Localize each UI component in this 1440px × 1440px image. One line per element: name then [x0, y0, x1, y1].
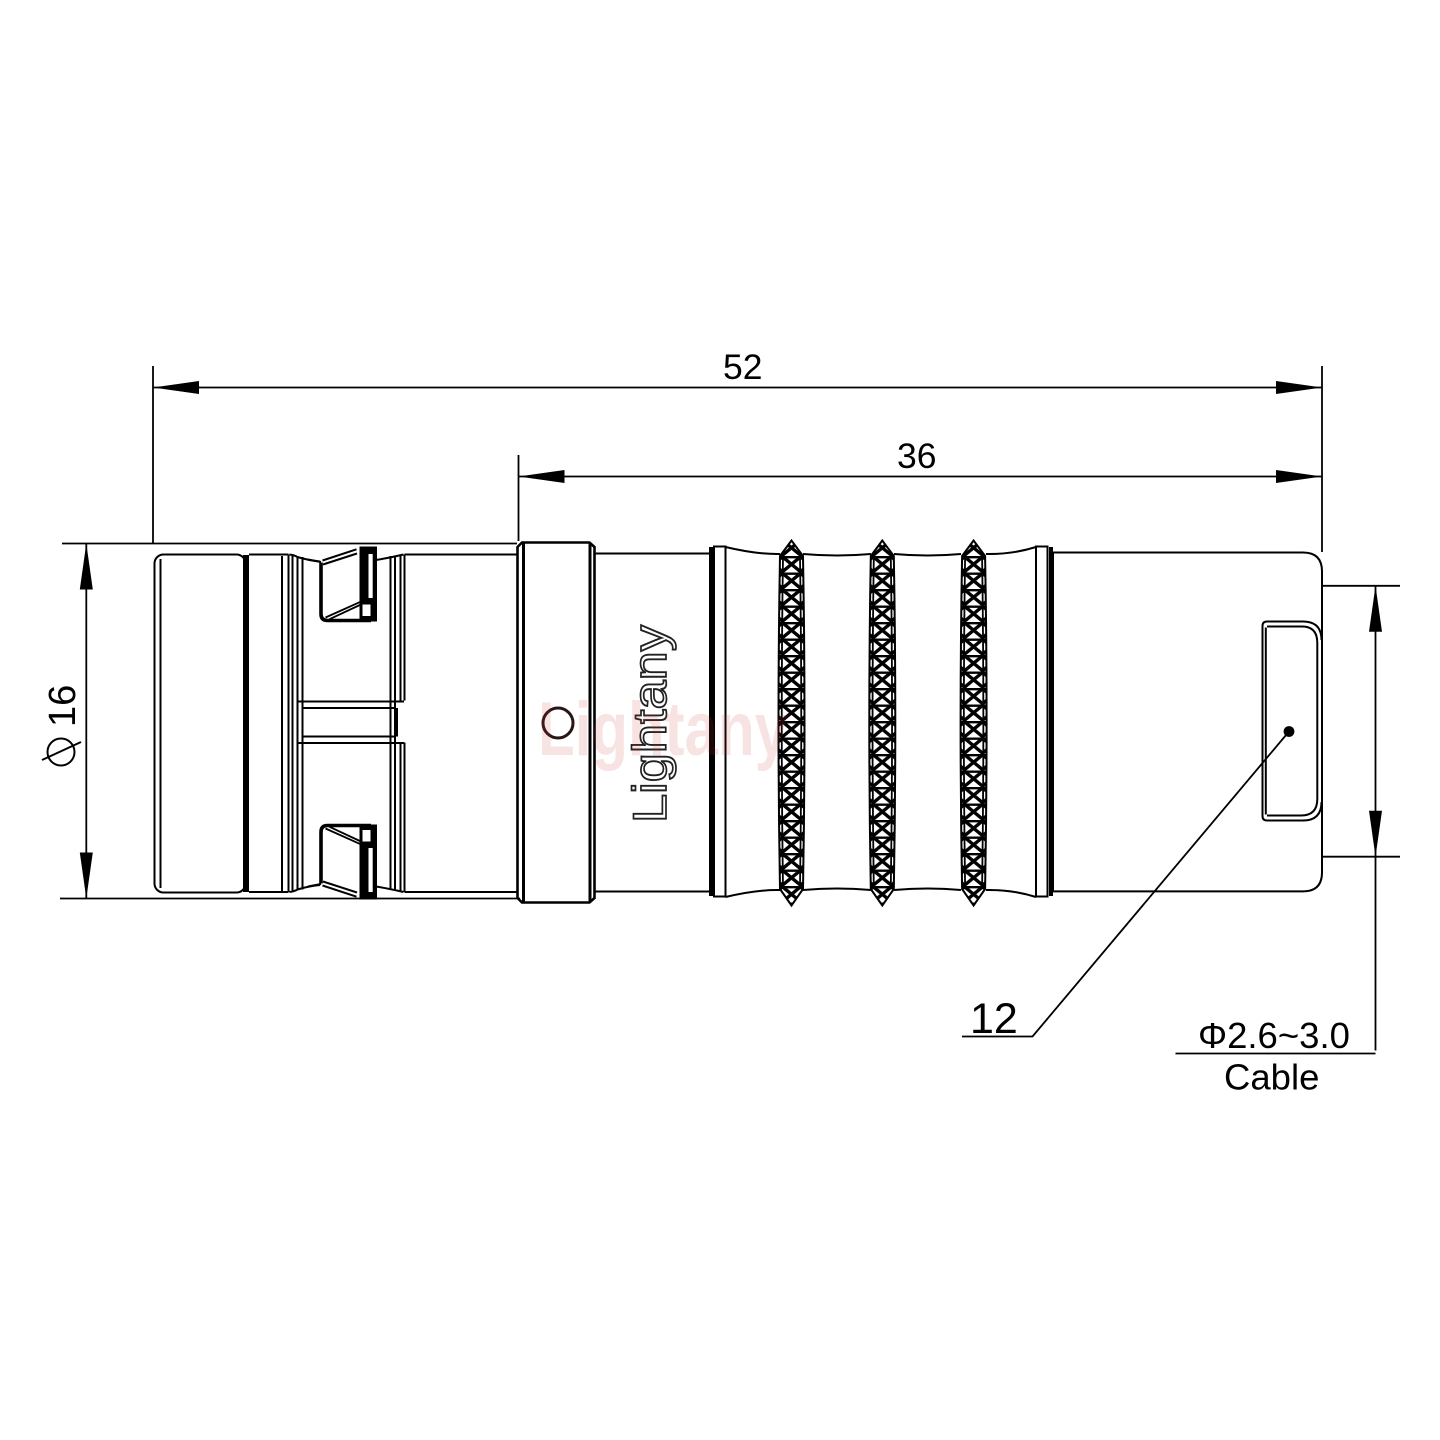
svg-text:36: 36 [897, 436, 937, 476]
svg-text:Lightany: Lightany [538, 687, 788, 772]
svg-text:16: 16 [42, 685, 84, 727]
svg-text:12: 12 [970, 995, 1018, 1043]
svg-text:Φ2.6~3.0: Φ2.6~3.0 [1198, 1015, 1350, 1056]
svg-text:52: 52 [723, 347, 763, 387]
svg-text:Cable: Cable [1224, 1057, 1319, 1098]
